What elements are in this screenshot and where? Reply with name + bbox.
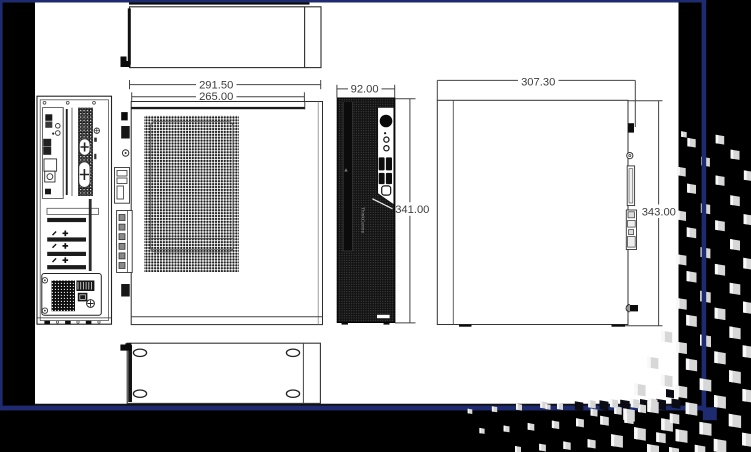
- svg-text:ThinkCentre: ThinkCentre: [360, 207, 366, 233]
- svg-text:343.00: 343.00: [642, 206, 676, 218]
- svg-text:341.00: 341.00: [395, 204, 429, 216]
- svg-text:92.00: 92.00: [351, 83, 379, 95]
- svg-text:307.30: 307.30: [521, 76, 555, 88]
- svg-text:291.50: 291.50: [199, 80, 233, 92]
